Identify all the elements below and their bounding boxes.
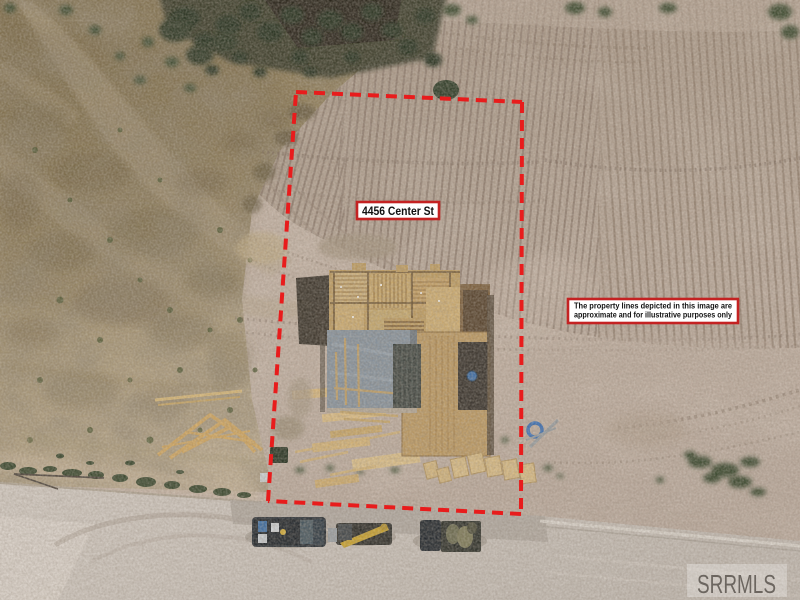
svg-text:4456 Center St: 4456 Center St: [362, 206, 434, 218]
svg-text:The property lines depicted in: The property lines depicted in this imag…: [574, 302, 733, 311]
svg-text:SRRMLS: SRRMLS: [697, 569, 776, 599]
svg-text:approximate and for illustrati: approximate and for illustrative purpose…: [574, 311, 733, 320]
